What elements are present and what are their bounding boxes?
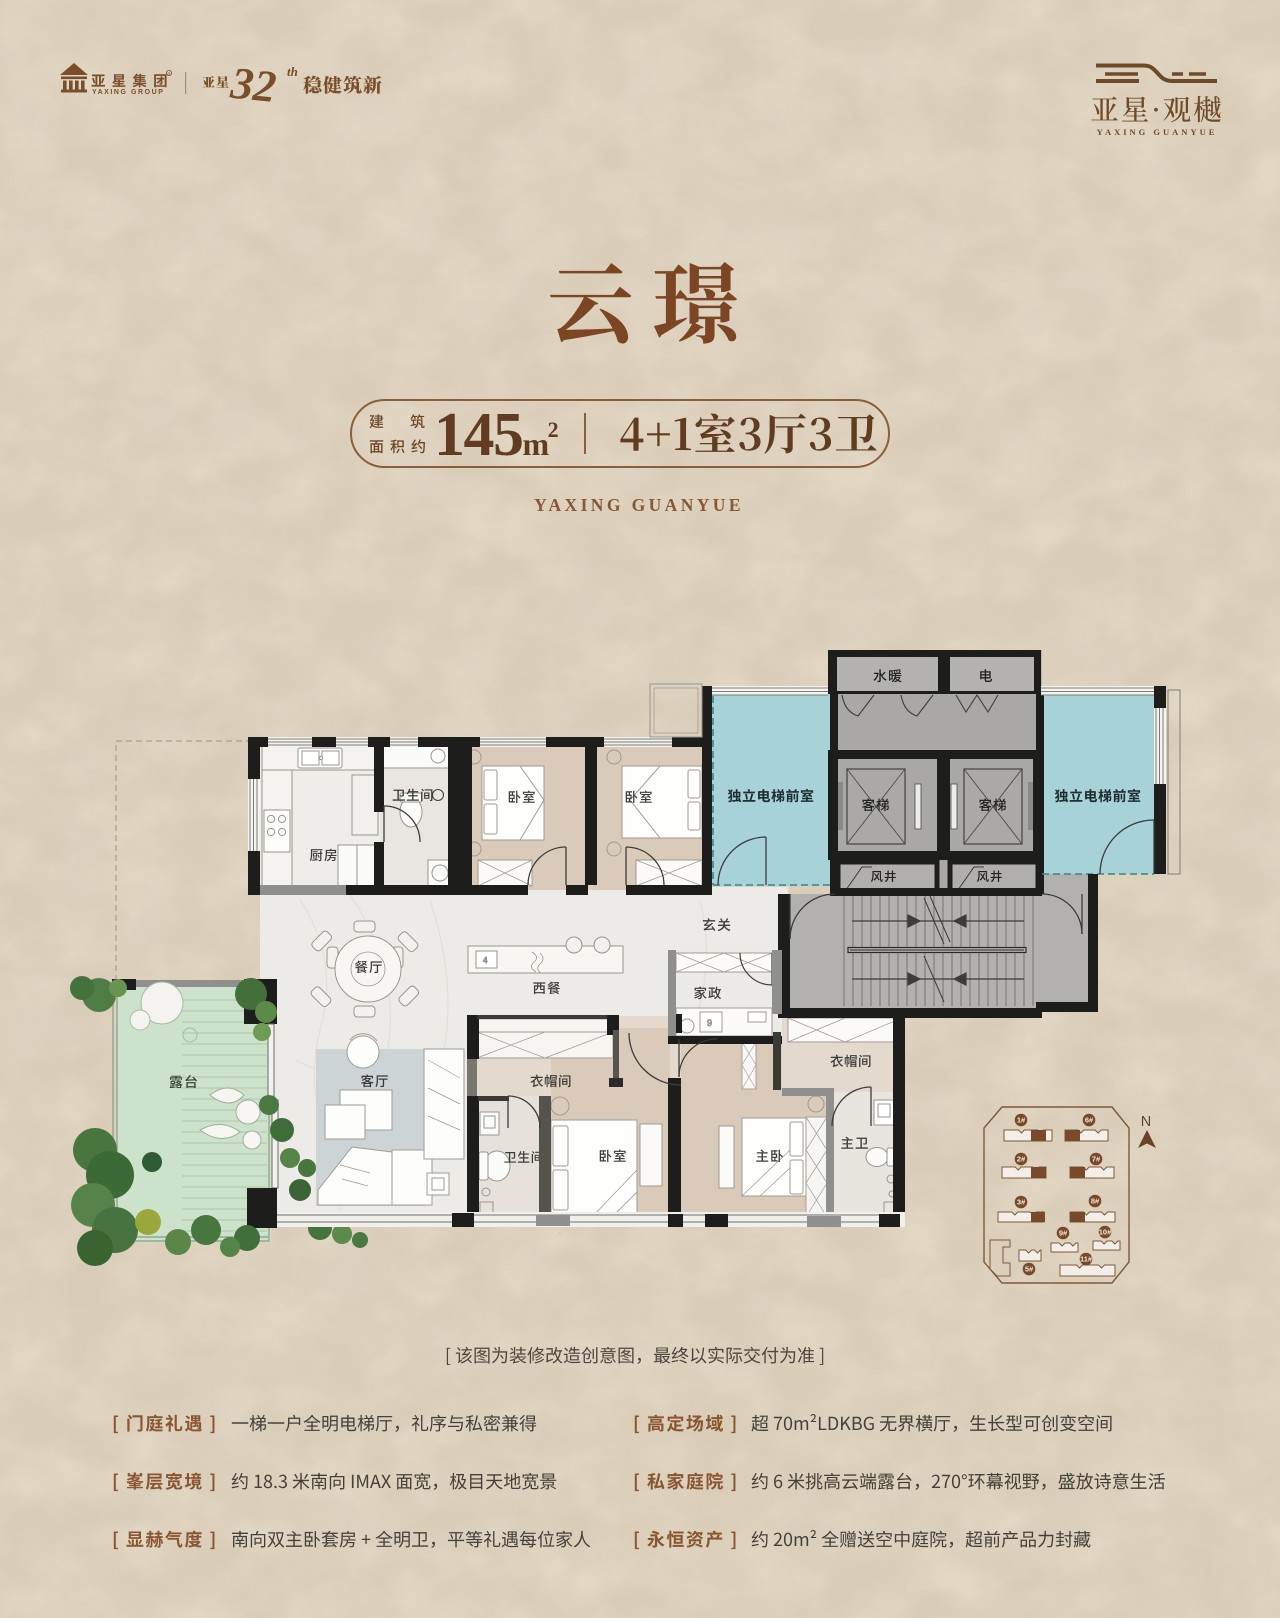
svg-text:YAXING GROUP: YAXING GROUP [92,89,164,96]
svg-text:32: 32 [228,58,279,113]
svg-text:2#: 2# [1017,1154,1026,1163]
svg-text:3#: 3# [1017,1197,1026,1206]
svg-text:11#: 11# [1080,1254,1093,1263]
svg-text:8#: 8# [1091,1196,1100,1205]
svg-text:6#: 6# [1085,1115,1094,1124]
svg-text:7#: 7# [1092,1154,1101,1163]
svg-text:YAXING GUANYUE: YAXING GUANYUE [1097,127,1218,137]
svg-text:5#: 5# [1025,1264,1034,1273]
svg-text:9: 9 [707,1018,712,1028]
svg-text:1#: 1# [1017,1115,1026,1124]
svg-text:R: R [168,71,171,76]
svg-text:YAXING GUANYUE: YAXING GUANYUE [534,495,744,515]
svg-text:9#: 9# [1059,1228,1068,1237]
svg-text:th: th [287,64,298,79]
svg-text:10#: 10# [1099,1227,1112,1236]
svg-text:N: N [1141,1114,1151,1130]
svg-text:4: 4 [483,956,488,965]
